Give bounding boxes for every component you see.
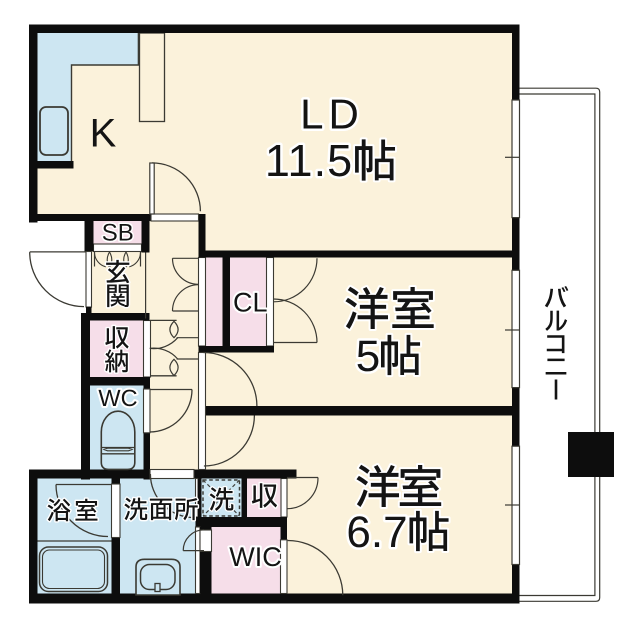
svg-text:5: 5 [356, 332, 380, 381]
svg-text:WC: WC [98, 385, 137, 411]
svg-text:WIC: WIC [229, 542, 281, 572]
svg-text:K: K [90, 111, 117, 155]
svg-text:LD: LD [300, 91, 364, 138]
svg-text:CL: CL [233, 287, 268, 317]
svg-text:SB: SB [102, 220, 134, 247]
svg-text:11.5: 11.5 [265, 135, 353, 186]
svg-text:6.7: 6.7 [346, 508, 407, 557]
